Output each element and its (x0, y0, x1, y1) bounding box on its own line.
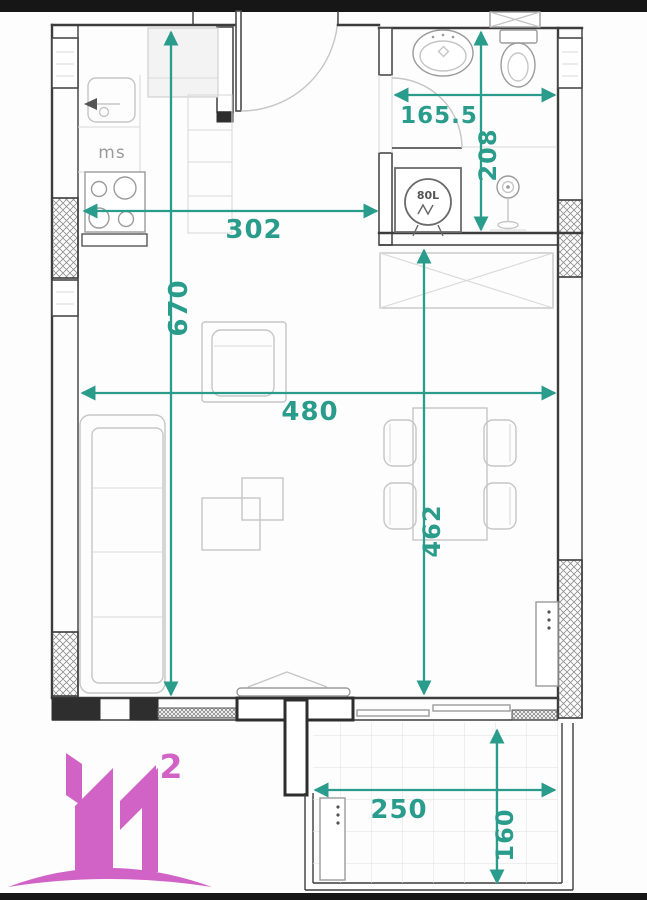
logo-right-tower (142, 768, 158, 872)
window-bottom-right (512, 710, 557, 720)
window-left-top (52, 38, 78, 88)
kitchen: ms (78, 28, 232, 246)
boiler: 80L (395, 168, 461, 236)
dim-balcony-width: 250 (370, 795, 427, 825)
logo-left-wing (66, 753, 82, 806)
floor-plan-svg: ms (0, 0, 647, 900)
sliding-door (357, 705, 510, 716)
bathroom: 80L (395, 30, 537, 236)
ac-unit (320, 798, 345, 880)
kitchen-partition (217, 27, 233, 112)
logo-superscript: 2 (160, 747, 183, 786)
stove (85, 172, 145, 232)
dim-living-width: 480 (281, 397, 338, 427)
pier-bottom-left2 (130, 698, 158, 720)
toilet (500, 30, 537, 87)
dim-bathroom-length: 208 (474, 128, 502, 181)
window-right-top (558, 38, 582, 88)
coffee-table (202, 478, 283, 550)
bath-sink (413, 30, 473, 76)
balcony-wall-left (285, 700, 307, 795)
kitchen-sink (84, 78, 135, 122)
wall-hatch-left-1 (52, 198, 78, 278)
entrance-door (236, 11, 338, 111)
letterbox-top (0, 0, 647, 12)
wardrobe (380, 253, 553, 308)
letterbox-bottom (0, 893, 647, 900)
tv (237, 672, 350, 696)
logo-arc (8, 868, 212, 887)
sofa (80, 415, 165, 693)
washing-machine-label: ms (98, 143, 125, 163)
boiler-label: 80L (417, 189, 439, 202)
armchair (202, 322, 286, 402)
wall-hatch-right-1 (558, 200, 582, 277)
living-room (80, 322, 558, 696)
kitchen-counter (148, 28, 218, 97)
faucet-icon (84, 98, 97, 110)
bath-wall-upper (379, 28, 392, 75)
dim-bathroom-width: 165.5 (400, 103, 478, 129)
dim-balcony-depth: 160 (491, 808, 519, 861)
balcony-tiles (313, 722, 558, 883)
counter-end (82, 234, 147, 246)
wall-hatch-right-2 (558, 560, 582, 718)
balcony (313, 722, 558, 883)
window-bottom-left (158, 708, 237, 718)
pier-bottom-left (52, 698, 100, 720)
bath-wall-lower (379, 153, 392, 245)
dining-set (384, 408, 516, 540)
radiator (536, 602, 558, 686)
dim-living-length: 670 (164, 279, 194, 336)
logo-m2: 2 (8, 747, 212, 887)
wall-hatch-left-2 (52, 632, 78, 696)
window-left-mid (52, 280, 78, 316)
dim-kitchen-width: 302 (225, 215, 282, 245)
shower (490, 176, 526, 230)
dim-dining-length: 462 (418, 504, 446, 557)
floorplan-page: ms (0, 0, 647, 900)
vent-shaft (490, 12, 540, 27)
